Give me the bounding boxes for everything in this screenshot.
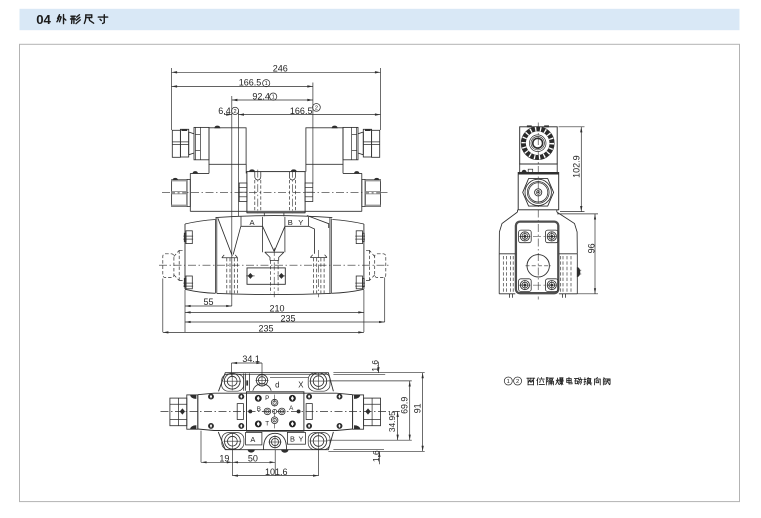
svg-text:P: P [265, 395, 269, 402]
svg-text:50: 50 [248, 453, 258, 463]
svg-text:235: 235 [258, 324, 273, 334]
svg-text:Y: Y [299, 434, 304, 443]
svg-text:B: B [288, 218, 293, 227]
svg-text:246: 246 [273, 64, 288, 74]
svg-text:34.95: 34.95 [387, 411, 397, 432]
svg-text:2: 2 [516, 379, 519, 385]
svg-text:1.6: 1.6 [371, 450, 381, 462]
svg-text:210: 210 [269, 304, 284, 314]
svg-text:04: 04 [36, 12, 51, 27]
svg-text:Y: Y [298, 218, 303, 227]
svg-text:A: A [250, 435, 255, 444]
svg-text:T: T [265, 421, 269, 428]
svg-text:69.9: 69.9 [399, 397, 409, 414]
svg-text:34.1: 34.1 [242, 354, 260, 364]
svg-text:B: B [290, 434, 295, 443]
svg-text:1: 1 [507, 379, 510, 385]
svg-text:X: X [298, 380, 304, 389]
svg-text:1.6: 1.6 [370, 360, 380, 372]
svg-text:19: 19 [219, 453, 229, 463]
svg-text:55: 55 [203, 297, 213, 307]
svg-text:1: 1 [272, 95, 275, 101]
svg-text:6.4: 6.4 [218, 106, 231, 116]
svg-text:102.9: 102.9 [572, 155, 582, 178]
svg-text:1: 1 [265, 81, 268, 87]
svg-text:235: 235 [280, 313, 295, 323]
svg-text:91: 91 [413, 403, 423, 413]
svg-text:166.5: 166.5 [239, 78, 262, 88]
svg-text:101.6: 101.6 [265, 467, 288, 477]
svg-text:B: B [257, 406, 261, 413]
svg-text:166.5: 166.5 [290, 106, 313, 116]
svg-text:2: 2 [315, 105, 318, 111]
svg-text:96: 96 [586, 243, 596, 253]
svg-text:d: d [275, 380, 279, 389]
svg-text:92.4: 92.4 [252, 91, 270, 101]
svg-text:2: 2 [234, 109, 237, 115]
